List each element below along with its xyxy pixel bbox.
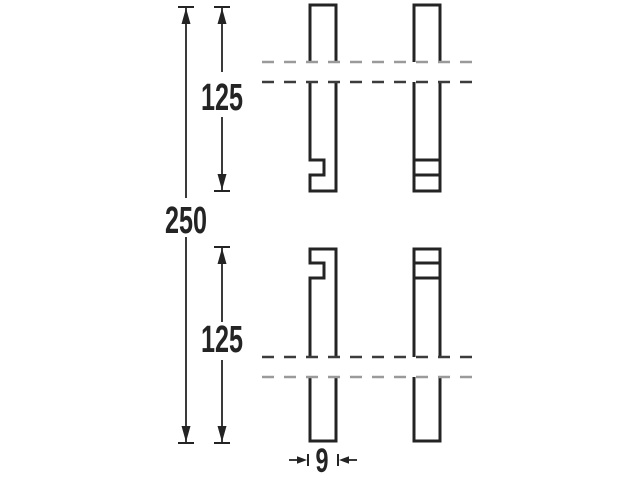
dimension-125-upper: 125 bbox=[201, 7, 243, 191]
dim-125-lower-arrow-up-icon bbox=[218, 248, 227, 264]
dim-250-arrow-up-icon bbox=[182, 8, 191, 24]
upper-left-profile-top-segment bbox=[310, 5, 336, 62]
drawing-canvas: 250 125 125 bbox=[0, 0, 642, 477]
lower-right-profile-top-segment bbox=[414, 249, 440, 357]
dim-250-arrow-down-icon bbox=[182, 426, 191, 442]
dim-9-arrow-right-icon bbox=[297, 456, 307, 464]
lower-left-profile-bottom-segment bbox=[310, 377, 336, 441]
dim-9-arrow-left-icon bbox=[339, 456, 349, 464]
break-lines-lower-section bbox=[262, 357, 474, 377]
technical-drawing: 250 125 125 bbox=[0, 0, 642, 477]
upper-left-profile-bottom-segment-with-notch bbox=[310, 82, 336, 191]
dim-125-upper-label: 125 bbox=[201, 77, 243, 119]
dim-250-label: 250 bbox=[165, 200, 207, 242]
lower-right-profile-bottom-segment bbox=[414, 377, 440, 441]
dim-125-lower-arrow-down-icon bbox=[218, 426, 227, 442]
dim-125-lower-label: 125 bbox=[201, 319, 243, 361]
dim-125-upper-arrow-up-icon bbox=[218, 8, 227, 24]
board-lower-half-front-view bbox=[413, 249, 441, 441]
board-lower-half-side-view bbox=[310, 249, 336, 441]
dim-125-upper-arrow-down-icon bbox=[218, 174, 227, 190]
dimension-9: 9 bbox=[289, 442, 357, 477]
lower-left-profile-top-segment-with-notch bbox=[310, 249, 336, 357]
dimension-250: 250 bbox=[165, 7, 207, 443]
dim-9-label: 9 bbox=[316, 442, 329, 477]
board-upper-half-side-view bbox=[310, 5, 336, 191]
dimension-125-lower: 125 bbox=[201, 247, 243, 443]
upper-right-profile-top-segment bbox=[414, 5, 440, 62]
break-lines-upper-section bbox=[262, 62, 474, 82]
board-upper-half-front-view bbox=[413, 5, 441, 191]
